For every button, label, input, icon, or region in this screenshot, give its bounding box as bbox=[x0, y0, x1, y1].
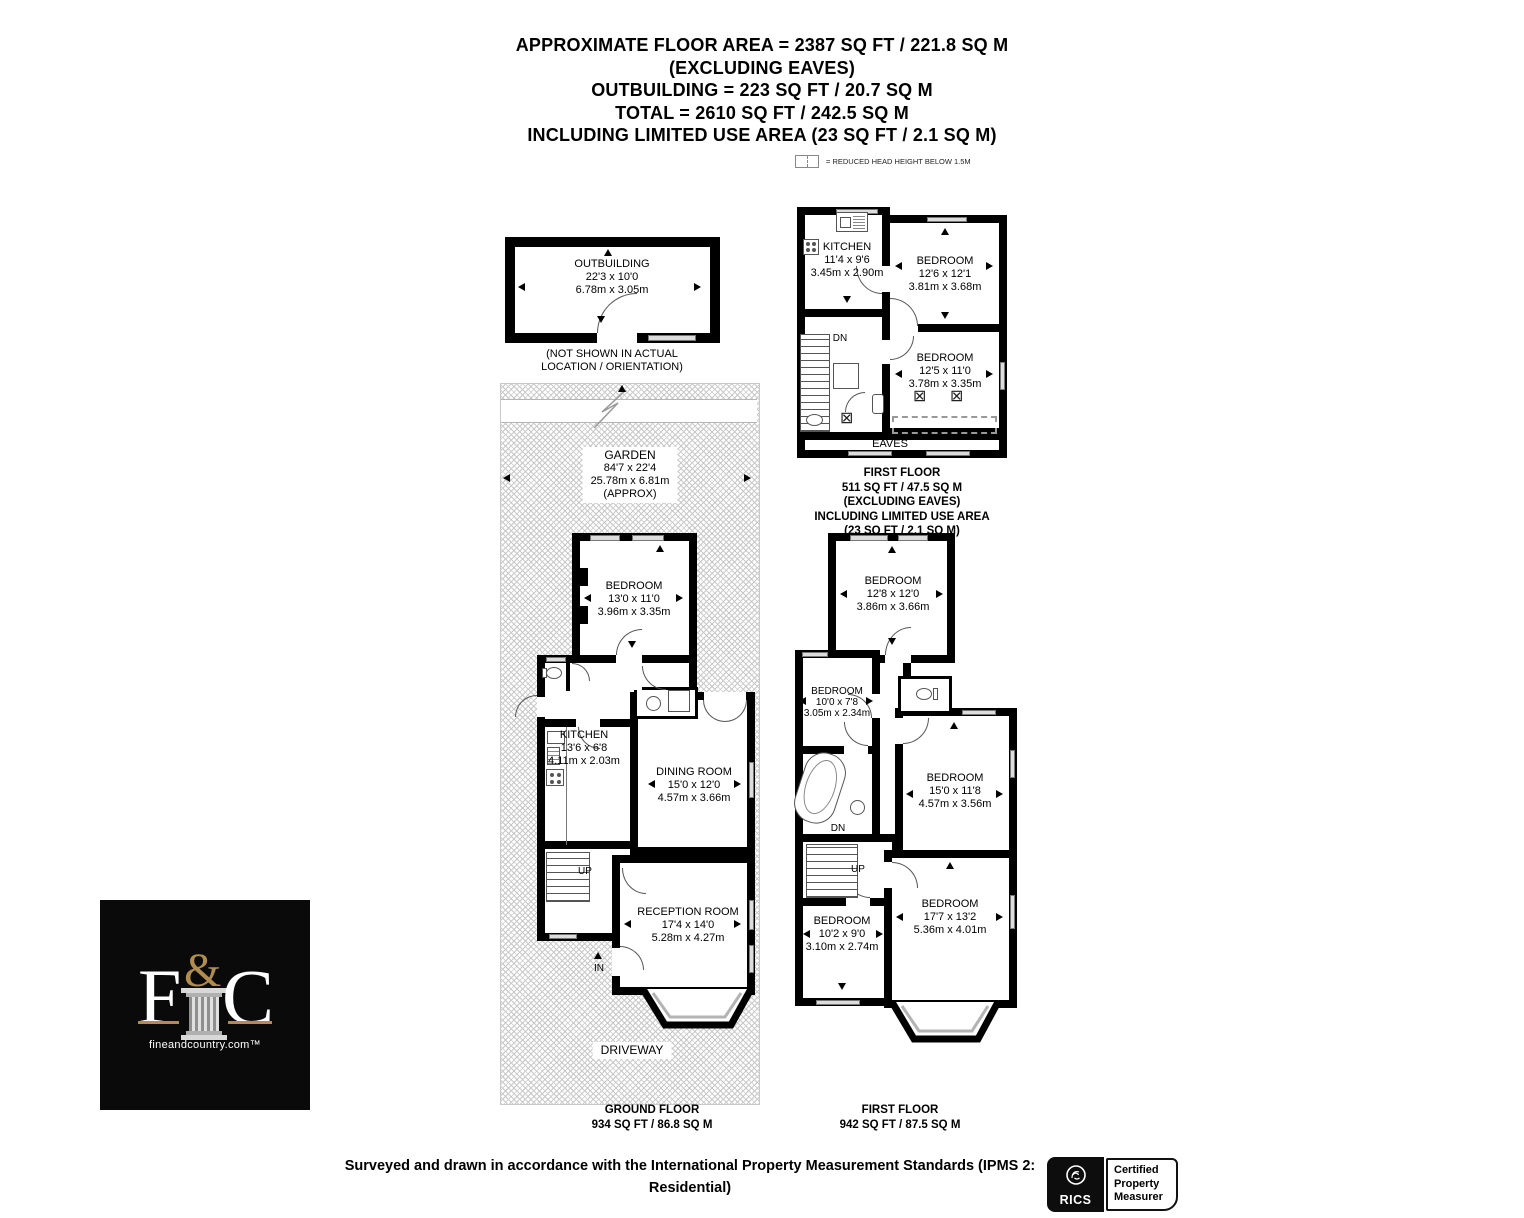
room-dim-ft: 12'5 x 11'0 bbox=[909, 365, 982, 378]
room-name: OUTBUILDING bbox=[574, 258, 649, 271]
floorplan-page: APPROXIMATE FLOOR AREA = 2387 SQ FT / 22… bbox=[0, 0, 1524, 1218]
note-line: LOCATION / ORIENTATION) bbox=[541, 361, 683, 374]
room-dim-m: 3.86m x 3.66m bbox=[857, 601, 930, 614]
note-line: (NOT SHOWN IN ACTUAL bbox=[541, 348, 683, 361]
room-name: BEDROOM bbox=[909, 352, 982, 365]
room-dim-m: 4.11m x 2.03m bbox=[548, 755, 620, 768]
door-opening bbox=[846, 898, 870, 906]
caption-line: FIRST FLOOR bbox=[840, 1103, 961, 1118]
summary-line: OUTBUILDING = 223 SQ FT / 20.7 SQ M bbox=[0, 79, 1524, 102]
outbuilding-note: (NOT SHOWN IN ACTUAL LOCATION / ORIENTAT… bbox=[541, 348, 683, 374]
staircase bbox=[546, 852, 590, 902]
badge-line: Property bbox=[1114, 1178, 1176, 1192]
garden-approx: (APPROX) bbox=[591, 488, 670, 501]
reduced-head-height-area bbox=[892, 416, 997, 434]
sink-bowl bbox=[840, 217, 851, 228]
room-dim-ft: 13'6 x 6'8 bbox=[548, 742, 620, 755]
dimension-arrow bbox=[676, 594, 683, 602]
window bbox=[1010, 750, 1015, 778]
ff-bay-window bbox=[886, 1001, 1004, 1047]
room-dim-m: 3.78m x 3.35m bbox=[909, 378, 982, 391]
room-dim-m: 4.57m x 3.56m bbox=[919, 798, 992, 811]
stove-hob bbox=[546, 769, 564, 786]
room-name: BEDROOM bbox=[919, 772, 992, 785]
dimension-arrow bbox=[996, 913, 1003, 921]
room-dim-m: 3.45m x 2.90m bbox=[811, 267, 884, 280]
first-floor-caption: FIRST FLOOR 942 SQ FT / 87.5 SQ M bbox=[840, 1103, 961, 1132]
dimension-arrow bbox=[656, 545, 664, 552]
dimension-arrow bbox=[694, 283, 701, 291]
rics-lion-icon bbox=[1063, 1163, 1089, 1189]
shower bbox=[668, 690, 690, 712]
dimension-arrow bbox=[946, 862, 954, 869]
garden-dim-m: 25.78m x 6.81m bbox=[591, 475, 670, 488]
garden-name: GARDEN bbox=[591, 449, 670, 462]
dimension-arrow bbox=[624, 920, 631, 928]
room-dim-m: 3.10m x 2.74m bbox=[806, 941, 879, 954]
dimension-arrow bbox=[618, 385, 626, 392]
door-opening bbox=[612, 948, 620, 976]
window bbox=[749, 900, 754, 930]
window bbox=[898, 535, 928, 541]
rics-label: RICS bbox=[1047, 1193, 1104, 1207]
door-opening bbox=[895, 718, 903, 744]
logo-gold-line bbox=[138, 1021, 179, 1024]
kitchen-sink-unit bbox=[836, 212, 868, 232]
room-dim-ft: 10'2 x 9'0 bbox=[806, 928, 879, 941]
dimension-arrow bbox=[584, 594, 591, 602]
summary-line: TOTAL = 2610 SQ FT / 242.5 SQ M bbox=[0, 102, 1524, 125]
door-opening bbox=[884, 862, 892, 888]
dimension-arrow bbox=[941, 312, 949, 319]
dimension-arrow bbox=[986, 262, 993, 270]
wc-partition bbox=[566, 663, 570, 691]
room-dim-ft: 15'0 x 12'0 bbox=[656, 779, 732, 792]
dimension-arrow bbox=[597, 316, 605, 323]
door-opening bbox=[885, 655, 911, 663]
window bbox=[962, 710, 996, 715]
room-label-sf-bedroom1: BEDROOM 12'6 x 12'1 3.81m x 3.68m bbox=[909, 255, 982, 294]
window bbox=[816, 1000, 860, 1005]
badge-line: Measurer bbox=[1114, 1191, 1176, 1205]
room-dim-ft: 15'0 x 11'8 bbox=[919, 785, 992, 798]
door-opening bbox=[537, 697, 545, 717]
stairs-up-label: UP bbox=[851, 864, 865, 875]
room-dim-m: 5.36m x 4.01m bbox=[914, 924, 987, 937]
reduced-head-height-symbol bbox=[795, 155, 819, 168]
eaves-label: EAVES bbox=[872, 438, 908, 451]
room-name: RECEPTION ROOM bbox=[637, 906, 738, 919]
rooflight-symbol: ⊠ bbox=[840, 411, 853, 427]
driveway-label: DRIVEWAY bbox=[593, 1042, 672, 1059]
window bbox=[926, 451, 970, 456]
room-dim-m: 3.81m x 3.68m bbox=[909, 281, 982, 294]
room-label-ff-bedroom1: BEDROOM 12'8 x 12'0 3.86m x 3.66m bbox=[857, 575, 930, 614]
chimney-breast bbox=[580, 606, 588, 624]
room-label-outbuilding: OUTBUILDING 22'3 x 10'0 6.78m x 3.05m bbox=[574, 258, 649, 297]
door-opening bbox=[597, 333, 637, 343]
shower bbox=[833, 363, 859, 389]
room-name: BEDROOM bbox=[804, 686, 870, 697]
door-opening bbox=[872, 694, 880, 718]
door-opening bbox=[844, 746, 868, 754]
caption-line: INCLUDING LIMITED USE AREA bbox=[814, 510, 989, 525]
dimension-arrow bbox=[503, 474, 510, 482]
room-name: BEDROOM bbox=[806, 915, 879, 928]
room-name: BEDROOM bbox=[914, 898, 987, 911]
dimension-arrow bbox=[838, 983, 846, 990]
window bbox=[546, 657, 566, 662]
hob-burners bbox=[806, 242, 810, 246]
room-dim-m: 3.05m x 2.34m bbox=[804, 708, 870, 719]
fine-and-country-logo: F & C fineandcountry.com™ bbox=[100, 900, 310, 1110]
chimney-breast bbox=[580, 568, 588, 586]
room-dim-ft: 10'0 x 7'8 bbox=[804, 697, 870, 708]
reduced-head-height-label: = REDUCED HEAD HEIGHT BELOW 1.5M bbox=[826, 157, 971, 166]
rooflight-symbol: ⊠ bbox=[950, 389, 963, 405]
caption-line: GROUND FLOOR bbox=[592, 1103, 713, 1118]
room-label-gf-bedroom: BEDROOM 13'0 x 11'0 3.96m x 3.35m bbox=[598, 580, 671, 619]
toilet bbox=[806, 414, 823, 426]
column-icon bbox=[181, 988, 227, 1040]
room-name: KITCHEN bbox=[548, 729, 620, 742]
dimension-arrow bbox=[895, 262, 902, 270]
window bbox=[590, 535, 620, 541]
logo-gold-line bbox=[228, 1021, 272, 1024]
room-label-sf-bedroom2: BEDROOM 12'5 x 11'0 3.78m x 3.35m bbox=[909, 352, 982, 391]
garden-label: GARDEN 84'7 x 22'4 25.78m x 6.81m (APPRO… bbox=[583, 447, 678, 503]
dimension-arrow bbox=[895, 370, 902, 378]
caption-line: FIRST FLOOR bbox=[814, 466, 989, 481]
summary-line: INCLUDING LIMITED USE AREA (23 SQ FT / 2… bbox=[0, 124, 1524, 147]
room-dim-ft: 12'6 x 12'1 bbox=[909, 268, 982, 281]
window bbox=[848, 451, 892, 456]
window bbox=[1010, 895, 1015, 929]
caption-line: (EXCLUDING EAVES) bbox=[814, 495, 989, 510]
dimension-arrow bbox=[648, 780, 655, 788]
certified-property-measurer-badge: Certified Property Measurer bbox=[1106, 1158, 1178, 1211]
window bbox=[927, 217, 967, 222]
toilet-cistern bbox=[542, 668, 547, 678]
basin bbox=[850, 800, 865, 815]
stairs-dn-label: DN bbox=[833, 333, 847, 344]
dimension-arrow bbox=[936, 590, 943, 598]
dimension-arrow bbox=[986, 370, 993, 378]
room-label-ff-bedroom3: BEDROOM 15'0 x 11'8 4.57m x 3.56m bbox=[919, 772, 992, 811]
door-opening bbox=[576, 719, 600, 727]
window bbox=[549, 934, 577, 939]
second-floor-caption: FIRST FLOOR 511 SQ FT / 47.5 SQ M (EXCLU… bbox=[814, 466, 989, 539]
toilet bbox=[916, 688, 932, 700]
door-opening bbox=[616, 655, 642, 663]
room-dim-m: 5.28m x 4.27m bbox=[637, 932, 738, 945]
room-name: BEDROOM bbox=[598, 580, 671, 593]
door-opening bbox=[882, 340, 890, 364]
stairs-dn-label: DN bbox=[831, 823, 845, 834]
room-label-ff-bedroom5: BEDROOM 17'7 x 13'2 5.36m x 4.01m bbox=[914, 898, 987, 937]
logo-letter-f: F bbox=[138, 958, 181, 1036]
ground-floor-caption: GROUND FLOOR 934 SQ FT / 86.8 SQ M bbox=[592, 1103, 713, 1132]
dimension-arrow bbox=[628, 641, 636, 648]
room-dim-m: 4.57m x 3.66m bbox=[656, 792, 732, 805]
column-shaft bbox=[189, 997, 219, 1031]
caption-line: 934 SQ FT / 86.8 SQ M bbox=[592, 1118, 713, 1133]
basin bbox=[646, 696, 661, 711]
room-label-gf-reception: RECEPTION ROOM 17'4 x 14'0 5.28m x 4.27m bbox=[637, 906, 738, 945]
window bbox=[850, 535, 888, 541]
room-dim-ft: 12'8 x 12'0 bbox=[857, 588, 930, 601]
entrance-in-label: IN bbox=[594, 963, 604, 974]
room-label-gf-dining: DINING ROOM 15'0 x 12'0 4.57m x 3.66m bbox=[656, 766, 732, 805]
window bbox=[632, 535, 664, 541]
toilet-cistern bbox=[933, 688, 938, 700]
dimension-arrow bbox=[843, 296, 851, 303]
room-dim-ft: 22'3 x 10'0 bbox=[574, 271, 649, 284]
room-name: BEDROOM bbox=[909, 255, 982, 268]
dimension-arrow bbox=[941, 228, 949, 235]
room-label-ff-bedroom2: BEDROOM 10'0 x 7'8 3.05m x 2.34m bbox=[804, 686, 870, 719]
drainer bbox=[853, 216, 865, 229]
room-dim-ft: 17'4 x 14'0 bbox=[637, 919, 738, 932]
room-name: DINING ROOM bbox=[656, 766, 732, 779]
room-dim-ft: 11'4 x 9'6 bbox=[811, 254, 884, 267]
dimension-arrow bbox=[888, 638, 896, 645]
door-opening bbox=[632, 666, 642, 690]
dimension-arrow bbox=[896, 913, 903, 921]
window bbox=[749, 762, 754, 798]
door-opening bbox=[704, 692, 746, 700]
summary-line: APPROXIMATE FLOOR AREA = 2387 SQ FT / 22… bbox=[0, 34, 1524, 57]
dimension-arrow bbox=[744, 474, 751, 482]
caption-line: 942 SQ FT / 87.5 SQ M bbox=[840, 1118, 961, 1133]
basin bbox=[872, 394, 884, 414]
room-label-sf-kitchen: KITCHEN 11'4 x 9'6 3.45m x 2.90m bbox=[811, 241, 884, 280]
rics-logo: RICS bbox=[1047, 1157, 1104, 1212]
summary-line: (EXCLUDING EAVES) bbox=[0, 57, 1524, 80]
dimension-arrow bbox=[604, 249, 612, 256]
dimension-arrow bbox=[518, 283, 525, 291]
room-name: BEDROOM bbox=[857, 575, 930, 588]
dimension-arrow bbox=[888, 546, 896, 553]
window bbox=[802, 652, 828, 657]
window bbox=[1000, 362, 1005, 390]
room-label-gf-kitchen: KITCHEN 13'6 x 6'8 4.11m x 2.03m bbox=[548, 729, 620, 768]
window bbox=[749, 945, 754, 973]
room-dim-m: 3.96m x 3.35m bbox=[598, 606, 671, 619]
room-dim-m: 6.78m x 3.05m bbox=[574, 284, 649, 297]
stairs-up-label: UP bbox=[578, 866, 592, 877]
room-name: KITCHEN bbox=[811, 241, 884, 254]
badge-line: Certified bbox=[1114, 1164, 1176, 1178]
dimension-arrow bbox=[906, 790, 913, 798]
room-dim-ft: 13'0 x 11'0 bbox=[598, 593, 671, 606]
entrance-arrow bbox=[594, 952, 602, 959]
dimension-arrow bbox=[734, 780, 741, 788]
garden-dim-ft: 84'7 x 22'4 bbox=[591, 462, 670, 475]
hob-burners bbox=[550, 773, 554, 777]
room-dim-ft: 17'7 x 13'2 bbox=[914, 911, 987, 924]
legend-divider bbox=[807, 156, 808, 167]
logo-letter-c: C bbox=[222, 958, 274, 1036]
logo-website: fineandcountry.com™ bbox=[100, 1039, 310, 1051]
room-label-ff-bedroom4: BEDROOM 10'2 x 9'0 3.10m x 2.74m bbox=[806, 915, 879, 954]
break-zigzag bbox=[592, 390, 662, 428]
dimension-arrow bbox=[840, 590, 847, 598]
floor-area-summary: APPROXIMATE FLOOR AREA = 2387 SQ FT / 22… bbox=[0, 34, 1524, 147]
window bbox=[648, 335, 696, 341]
caption-line: 511 SQ FT / 47.5 SQ M bbox=[814, 481, 989, 496]
dimension-arrow bbox=[996, 790, 1003, 798]
toilet bbox=[546, 667, 562, 679]
gf-bay-window bbox=[637, 988, 757, 1032]
dimension-arrow bbox=[950, 722, 958, 729]
rooflight-symbol: ⊠ bbox=[913, 389, 926, 405]
